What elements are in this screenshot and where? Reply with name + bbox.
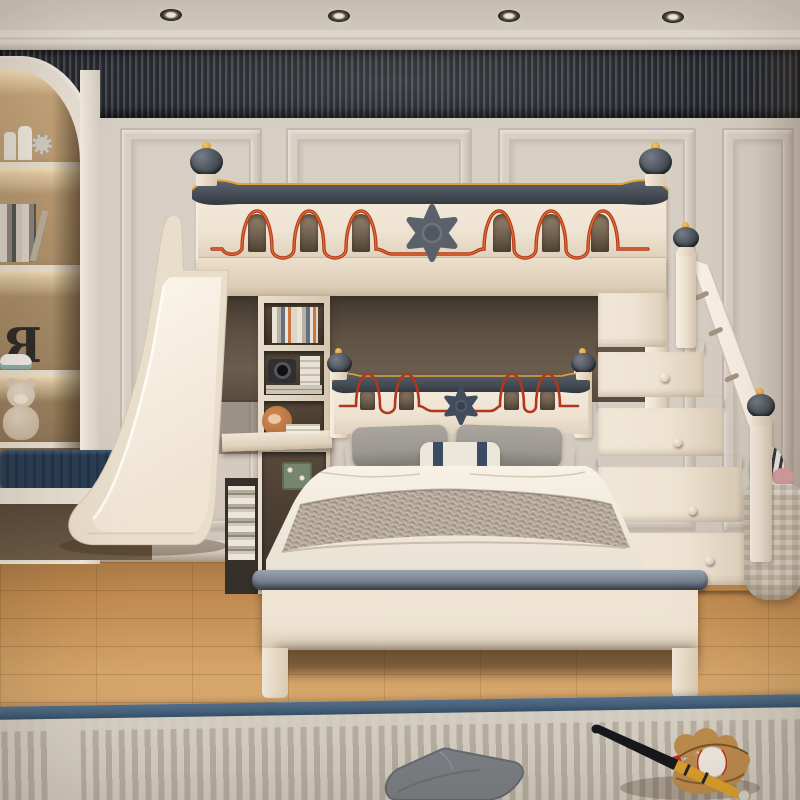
book-stack — [300, 356, 320, 388]
rug-plain-band — [50, 718, 82, 800]
footboard-panel — [262, 590, 698, 650]
ceiling-spotlight — [160, 9, 182, 21]
notebooks — [286, 424, 320, 434]
stair-top-cabinet — [598, 293, 666, 347]
baseball-set — [580, 715, 760, 800]
footboard-rail — [252, 570, 708, 590]
stair-newel-top — [676, 250, 696, 348]
castle-figurine — [4, 132, 16, 160]
under-bed-shadow — [276, 648, 696, 674]
headboard-rail-and-motif — [325, 360, 595, 430]
play-slide — [20, 210, 280, 700]
gear-ornament — [32, 134, 52, 154]
ceiling-spotlight — [498, 10, 520, 22]
crown-molding — [0, 30, 800, 50]
castle-figurine-tower — [18, 126, 32, 160]
ceiling-spotlight — [662, 11, 684, 23]
slat-feature-wall — [0, 50, 800, 118]
shelf-light-glow — [0, 70, 80, 96]
teddy-bear-ear — [6, 378, 16, 388]
shelf-light-glow — [0, 168, 80, 194]
shelf-board — [0, 162, 80, 168]
sheriff-star-medallion — [402, 203, 462, 263]
floor-cushion — [375, 740, 530, 800]
bed-leg — [672, 648, 698, 698]
bedroom-photo: R — [0, 0, 800, 800]
stair-newel-bottom — [750, 420, 772, 562]
ceiling-spotlight — [328, 10, 350, 22]
